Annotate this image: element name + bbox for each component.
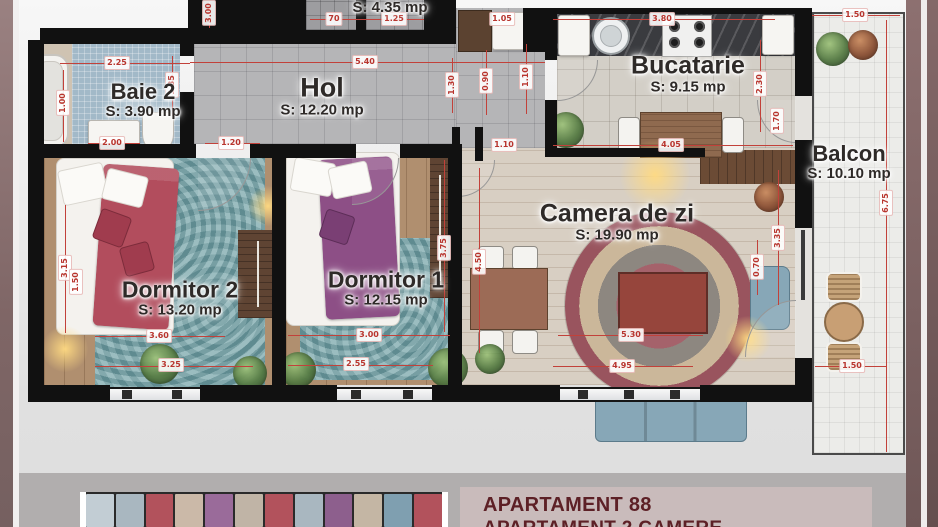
kitchen-cabinet-right <box>762 15 794 55</box>
thumb-cell <box>354 494 382 527</box>
room-area: S: 19.90 mp <box>540 227 694 243</box>
room-label-camera-de-zi: Camera de zi S: 19.90 mp <box>540 200 694 243</box>
dimension-label: 3.60 <box>146 329 172 343</box>
dimension-label: 3.25 <box>158 358 184 372</box>
window-mullion <box>624 390 634 399</box>
apartment-info-box: APARTAMENT 88 APARTAMENT 2 CAMERE <box>460 487 872 527</box>
balcony-table <box>824 302 864 342</box>
bedroom2-wardrobe <box>238 230 276 318</box>
dimension-label: 1.50 <box>839 359 865 373</box>
dimension-label: 0.70 <box>750 254 764 280</box>
room-label-balcon: Balcon S: 10.10 mp <box>807 142 890 182</box>
room-name: Camera de zi <box>540 200 694 227</box>
balcony-window-frame <box>801 230 805 300</box>
thumb-cell <box>146 494 174 527</box>
window-mullion <box>351 390 361 399</box>
window <box>110 387 200 402</box>
dimension-line <box>886 20 887 452</box>
window <box>560 387 700 402</box>
window-mullion <box>578 390 588 399</box>
room-area: S: 12.20 mp <box>280 102 363 118</box>
left-white-strip <box>13 0 19 527</box>
dimension-label: 6.75 <box>879 190 893 216</box>
dimension-label: 2.25 <box>104 56 130 70</box>
wall <box>424 0 456 44</box>
wall <box>700 385 795 402</box>
wall <box>272 158 286 385</box>
dimension-label: 4.95 <box>609 359 635 373</box>
wall <box>545 8 557 60</box>
thumb-cell <box>265 494 293 527</box>
dimension-label: 0.90 <box>479 68 493 94</box>
wall <box>448 158 462 385</box>
room-area: S: 3.90 mp <box>105 104 180 120</box>
room-area: S: 13.20 mp <box>122 302 238 318</box>
wall <box>432 385 560 402</box>
dining-chair <box>512 330 538 354</box>
thumb-cell <box>86 494 114 527</box>
dimension-label: 1.20 <box>218 136 244 150</box>
room-name: Hol <box>280 73 363 102</box>
window-mullion <box>670 390 680 399</box>
balcony-floor <box>812 12 905 455</box>
window-mullion <box>172 390 182 399</box>
room-area: S: 12.15 mp <box>328 292 444 308</box>
wall <box>795 358 812 402</box>
door-stub <box>475 127 483 161</box>
window-mullion <box>403 390 413 399</box>
plant <box>848 30 878 60</box>
apartment-subtitle: APARTAMENT 2 CAMERE <box>483 518 872 527</box>
dimension-label: 1.50 <box>842 8 868 22</box>
thumb-cell <box>325 494 353 527</box>
dimension-label: 3.80 <box>649 12 675 26</box>
wall <box>28 385 110 402</box>
room-area: S: 10.10 mp <box>807 166 890 182</box>
dining-table <box>470 268 548 330</box>
wall <box>200 385 337 402</box>
burner <box>694 21 705 32</box>
dimension-label: 3.00 <box>202 0 216 26</box>
dimension-label: 1.70 <box>770 108 784 134</box>
balcony-chair <box>826 272 862 302</box>
room-name: Dormitor 1 <box>328 267 444 292</box>
entrance-door <box>458 10 492 52</box>
room-label-dormitor1: Dormitor 1 S: 12.15 mp <box>328 267 444 308</box>
wall <box>250 144 356 158</box>
apartment-title: APARTAMENT 88 <box>483 494 872 517</box>
thumb-cell <box>175 494 203 527</box>
dimension-label: 2.30 <box>753 71 767 97</box>
dimension-label: 5.40 <box>352 55 378 69</box>
thumb-cell <box>384 494 412 527</box>
room-label-hol: Hol S: 12.20 mp <box>280 73 363 118</box>
room-area: S: 9.15 mp <box>631 79 745 95</box>
wall <box>557 8 812 14</box>
thumb-cell <box>205 494 233 527</box>
dimension-label: 1.30 <box>445 72 459 98</box>
room-name: Dormitor 2 <box>122 277 238 302</box>
room-area: S: 4.35 mp <box>352 0 427 16</box>
wall <box>28 40 44 402</box>
thumb-cell <box>235 494 263 527</box>
dimension-label: 3.75 <box>437 235 451 261</box>
wall <box>180 44 194 56</box>
door-stub <box>452 127 460 161</box>
window <box>337 387 432 402</box>
right-mauve-strip-inner <box>906 0 921 527</box>
dimension-label: 1.10 <box>491 138 517 152</box>
dimension-label: 1.05 <box>489 12 515 26</box>
dimension-label: 2.00 <box>99 136 125 150</box>
wall <box>40 28 188 44</box>
wall <box>795 14 812 96</box>
floor-plan-thumbnail[interactable] <box>80 492 448 527</box>
plant <box>754 182 784 212</box>
kitchen-cabinet-left <box>558 15 590 56</box>
thumb-cell <box>295 494 323 527</box>
room-label-baie2: Baie 2 S: 3.90 mp <box>105 80 180 120</box>
kitchen-chair <box>722 117 744 153</box>
window-mullion <box>122 390 132 399</box>
dimension-label: 3.00 <box>356 328 382 342</box>
kitchen-balcony-threshold <box>795 96 812 140</box>
dimension-label: 2.55 <box>343 357 369 371</box>
room-name: Baie 2 <box>105 80 180 104</box>
floor-plan-page: 2.25 3.00 1.00 1.35 2.00 1.20 70 1.25 5.… <box>0 0 938 527</box>
wall <box>180 92 194 152</box>
dimension-label: 4.05 <box>658 138 684 152</box>
kitchen-sink <box>592 17 630 55</box>
burner <box>694 37 705 48</box>
dimension-label: 1.50 <box>69 269 83 295</box>
wall <box>545 100 557 148</box>
thumb-cell <box>116 494 144 527</box>
room-label-bucatarie: Bucatarie S: 9.15 mp <box>631 52 745 95</box>
room-name: Bucatarie <box>631 52 745 79</box>
right-mauve-strip-outer <box>927 0 938 527</box>
left-mauve-strip <box>0 0 13 527</box>
dimension-label: 5.30 <box>618 328 644 342</box>
dimension-label: 3.35 <box>771 225 785 251</box>
dining-chair <box>512 246 538 270</box>
thumb-cell <box>414 494 442 527</box>
coffee-table <box>618 272 708 334</box>
dimension-label: 4.50 <box>472 249 486 275</box>
dimension-label: 1.10 <box>519 64 533 90</box>
burner <box>669 37 680 48</box>
room-label-closet: S: 4.35 mp <box>352 0 427 16</box>
room-label-dormitor2: Dormitor 2 S: 13.20 mp <box>122 277 238 318</box>
dimension-label: 70 <box>325 12 342 26</box>
plant <box>816 32 850 66</box>
dimension-label: 1.00 <box>56 90 70 116</box>
room-name: Balcon <box>807 142 890 166</box>
